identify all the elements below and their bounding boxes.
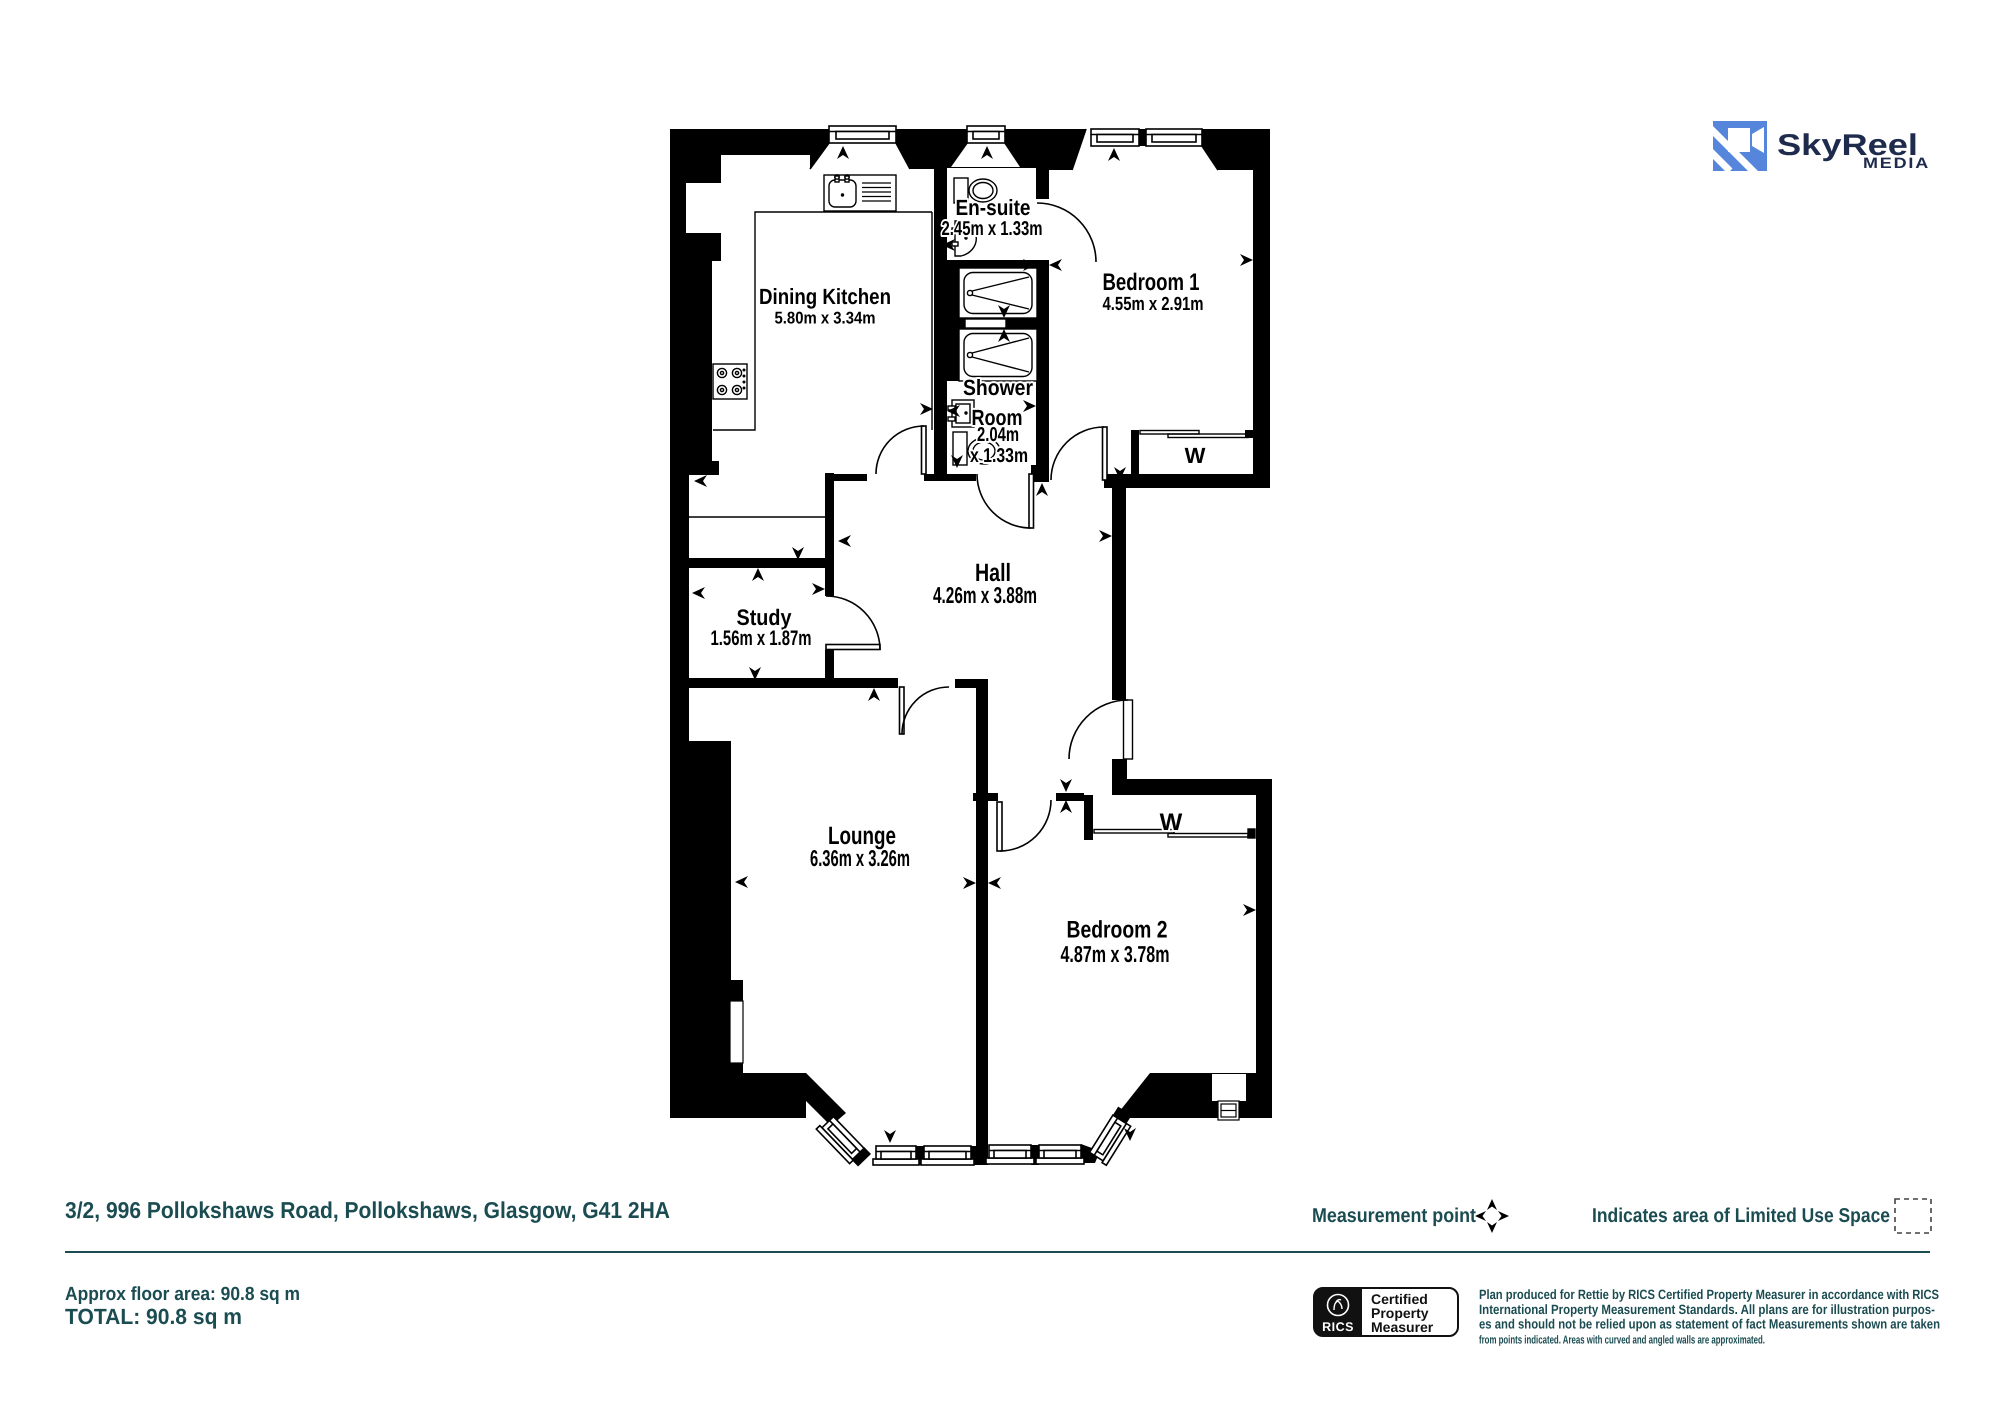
svg-text:En-suite: En-suite: [956, 195, 1031, 220]
svg-text:Shower: Shower: [963, 375, 1033, 400]
svg-text:es and should not be relied up: es and should not be relied upon as stat…: [1479, 1317, 1940, 1332]
svg-text:x 1.33m: x 1.33m: [970, 445, 1028, 467]
svg-text:4.55m x 2.91m: 4.55m x 2.91m: [1103, 294, 1204, 315]
svg-text:2.04m: 2.04m: [977, 424, 1019, 446]
svg-text:Dining Kitchen: Dining Kitchen: [759, 284, 891, 309]
svg-text:3/2, 996 Pollokshaws Road, Pol: 3/2, 996 Pollokshaws Road, Pollokshaws, …: [65, 1197, 670, 1223]
svg-text:4.26m x 3.88m: 4.26m x 3.88m: [933, 582, 1037, 608]
svg-text:Bedroom 1: Bedroom 1: [1103, 269, 1200, 296]
svg-text:5.80m x 3.34m: 5.80m x 3.34m: [775, 309, 876, 328]
svg-text:6.36m x 3.26m: 6.36m x 3.26m: [810, 845, 910, 871]
svg-text:from points indicated. Areas w: from points indicated. Areas with curved…: [1479, 1334, 1765, 1346]
svg-text:2.45m x 1.33m: 2.45m x 1.33m: [942, 218, 1043, 240]
svg-text:Measurer: Measurer: [1371, 1319, 1434, 1335]
svg-text:4.87m x 3.78m: 4.87m x 3.78m: [1061, 941, 1170, 967]
svg-text:RICS: RICS: [1322, 1320, 1354, 1334]
svg-text:TOTAL: 90.8 sq m: TOTAL: 90.8 sq m: [65, 1304, 242, 1329]
svg-text:W: W: [1185, 443, 1206, 468]
svg-text:MEDIA: MEDIA: [1863, 155, 1930, 172]
svg-text:Measurement point: Measurement point: [1312, 1205, 1476, 1227]
svg-text:W: W: [1160, 809, 1183, 836]
svg-text:International Property Measur: International Property Measurement Stand…: [1479, 1302, 1935, 1317]
svg-text:Bedroom 2: Bedroom 2: [1067, 917, 1168, 944]
svg-text:Indicates area of Limited Use: Indicates area of Limited Use Space: [1592, 1205, 1890, 1227]
svg-text:Approx floor area: 90.8 sq m: Approx floor area: 90.8 sq m: [65, 1284, 300, 1305]
svg-text:Plan produced for Rettie by RI: Plan produced for Rettie by RICS Certifi…: [1479, 1287, 1939, 1302]
svg-text:1.56m x 1.87m: 1.56m x 1.87m: [711, 627, 812, 650]
